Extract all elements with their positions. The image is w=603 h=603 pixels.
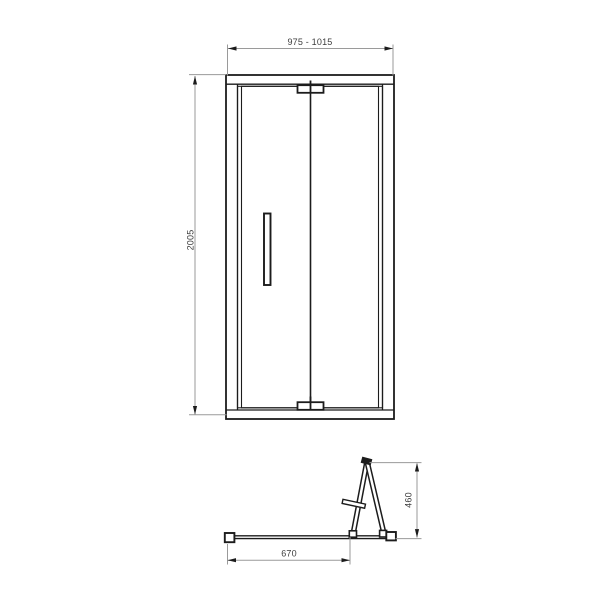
dimension-plan-width: 670	[228, 537, 351, 565]
arrow-right-icon	[342, 558, 351, 562]
dimension-front-width: 975 - 1015	[228, 37, 394, 76]
door-handle	[264, 214, 271, 286]
dimension-front-height: 2005	[186, 75, 227, 415]
fold-apex-hinge	[362, 457, 372, 464]
arrow-left-icon	[228, 558, 237, 562]
plan-view: 460 670	[225, 457, 422, 564]
dimension-label-plan-width: 670	[281, 549, 297, 559]
folded-panel-right	[365, 462, 385, 533]
arrow-down-icon	[193, 406, 197, 415]
arrow-down-icon	[415, 529, 419, 538]
arrow-left-icon	[228, 46, 237, 50]
arrow-up-icon	[193, 76, 197, 85]
dimension-label-width: 975 - 1015	[287, 37, 332, 47]
arrow-up-icon	[415, 463, 419, 472]
wall-profile-block-left	[225, 533, 235, 542]
pivot-foot-left	[349, 531, 356, 537]
wall-profile-block-right	[386, 532, 396, 540]
technical-drawing-canvas: 975 - 1015 2005	[0, 0, 603, 603]
dimension-label-height: 2005	[186, 230, 196, 251]
front-elevation-view: 975 - 1015 2005	[186, 37, 395, 419]
drawing-svg: 975 - 1015 2005	[0, 0, 603, 603]
folded-panel-left	[351, 462, 368, 534]
arrow-right-icon	[385, 46, 394, 50]
dimension-label-depth: 460	[404, 492, 414, 508]
